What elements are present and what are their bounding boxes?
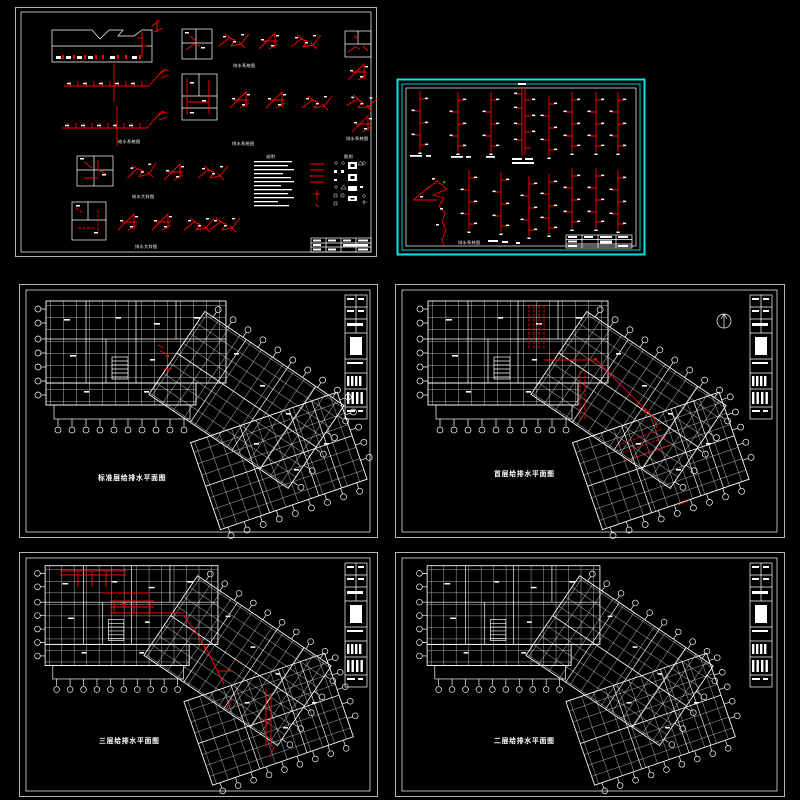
riser-main: [512, 83, 535, 164]
pipe-run-2: [62, 111, 167, 128]
floorplan-standard[interactable]: 标准层给排水平面图: [18, 283, 379, 539]
north-arrow-icon: [717, 314, 731, 328]
title-block: [311, 238, 371, 252]
sheet-title: 首层给排水平面图: [494, 469, 555, 478]
pipe-run-1: [64, 69, 169, 86]
floorplan-third[interactable]: 三层给排水平面图: [18, 551, 379, 798]
risers-top-row: [410, 83, 626, 164]
risers-bottom-row: [413, 168, 626, 246]
section-detail: [52, 20, 163, 62]
caption-right: 排水系统图: [346, 135, 368, 142]
sheet-title: 标准层给排水平面图: [97, 473, 166, 482]
sheet-title: 二层给排水平面图: [494, 736, 555, 745]
green-marker: [443, 181, 445, 183]
detail-plan-2: [345, 31, 371, 57]
caption-run2: 给水系统图: [118, 138, 140, 145]
detail-plan-5: [72, 202, 106, 240]
legend-symbols: 图例: [334, 153, 367, 205]
cad-workspace: 排水系统图 排水系统图 给水系统图 排水系统图 给水大样图: [0, 0, 800, 800]
detail-plan-4: [77, 156, 113, 186]
detail-plan-3: [182, 74, 217, 120]
sheet-border: [398, 80, 645, 255]
floorplan-first[interactable]: 首层给排水平面图: [394, 283, 786, 539]
caption-trio: 给水大样图: [132, 193, 154, 200]
riser-profile: [413, 178, 447, 246]
caption-bottom: 排水大样图: [135, 243, 157, 250]
sheet-details[interactable]: 排水系统图 排水系统图 给水系统图 排水系统图 给水大样图: [14, 6, 378, 258]
caption-row2: 排水系统图: [232, 140, 254, 147]
sheet-title: 三层给排水平面图: [99, 736, 160, 745]
floorplan-second[interactable]: 二层给排水平面图: [394, 551, 786, 798]
detail-plan-1: [182, 29, 212, 59]
legend-lines: [310, 164, 324, 207]
svg-text:说明: 说明: [266, 153, 275, 160]
svg-text:图例: 图例: [344, 153, 353, 160]
sheet-risers[interactable]: 排水系统图: [396, 78, 646, 256]
notes-block: 说明: [254, 153, 294, 206]
riser-labels-top: [410, 155, 495, 158]
caption-row1: 排水系统图: [233, 62, 255, 69]
caption-blobs: [488, 240, 520, 244]
riser-caption: 排水系统图: [458, 239, 480, 246]
